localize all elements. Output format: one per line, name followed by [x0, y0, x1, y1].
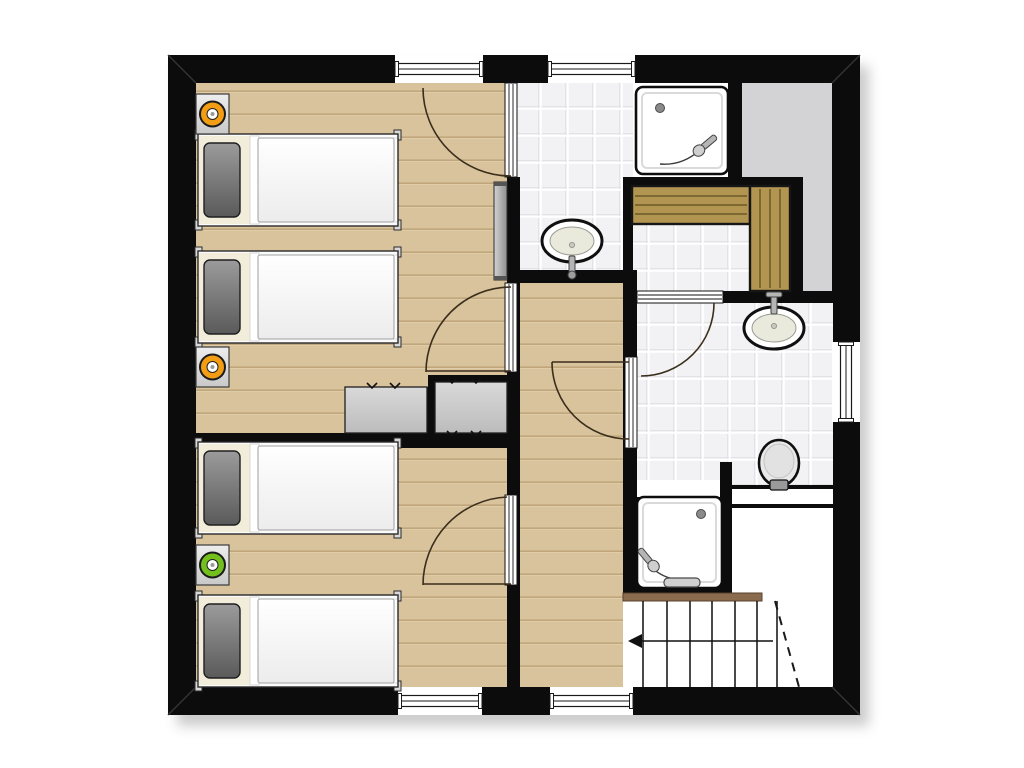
wall-bed1-bath1: [507, 177, 520, 285]
toilet-foot: [770, 480, 788, 490]
door-frame: [505, 495, 517, 585]
door-frame: [505, 83, 517, 177]
window-south-2: [550, 687, 633, 715]
faucet-hole: [569, 242, 574, 247]
shower-tray-1: [636, 87, 728, 174]
toilet-seat: [764, 444, 794, 478]
pillow: [204, 451, 240, 525]
wall-wardrobe-mid: [427, 387, 435, 433]
wall-shower1-east: [728, 55, 742, 177]
wall-sauna-south-w: [623, 291, 637, 303]
bed-3: [195, 438, 401, 538]
lamp-dot: [211, 563, 215, 567]
wardrobe-2: [435, 378, 507, 436]
duvet: [258, 255, 394, 339]
nightstand-3: [196, 545, 229, 585]
door-bed2-corridor: [505, 495, 517, 585]
window-jamb-bottom: [839, 419, 854, 423]
shower-drain: [656, 104, 665, 113]
shower-drain: [697, 510, 706, 519]
nightstand-1: [196, 94, 229, 134]
pillow: [204, 260, 240, 334]
wall-sauna-east: [790, 188, 803, 303]
tap-handle: [766, 292, 782, 297]
window-south-1: [398, 687, 482, 715]
window-jamb-left: [398, 694, 402, 709]
tap-base: [568, 271, 576, 279]
bed-4: [195, 591, 401, 691]
floor-plan: [0, 0, 1024, 768]
window-jamb-top: [839, 342, 854, 346]
lamp-dot: [211, 112, 215, 116]
bed-1: [195, 130, 401, 230]
tap-stem: [771, 295, 777, 314]
wardrobe-1: [345, 383, 427, 433]
shower-tray: [637, 497, 722, 588]
window-jamb-left: [550, 694, 554, 709]
panel-cap-bottom: [494, 276, 507, 280]
panel-body: [494, 182, 507, 280]
panel-cap-top: [494, 182, 507, 186]
duvet: [258, 599, 394, 683]
door-frame: [625, 357, 637, 448]
faucet-hole: [771, 323, 776, 328]
wall-corridor-bath2-s: [623, 448, 637, 593]
duvet: [258, 446, 394, 530]
sauna-bench-right: [750, 186, 790, 291]
door-bed1-bath1: [505, 83, 517, 177]
door-frame: [505, 283, 517, 372]
stair-void: [732, 508, 833, 593]
sliding-door-panel: [494, 182, 507, 280]
shower-tray-2: [635, 497, 722, 588]
wardrobe-body: [345, 387, 427, 433]
wall-bed2-corridor: [507, 585, 520, 687]
stair-handrail-edge: [623, 593, 762, 601]
window-jamb-left: [395, 62, 399, 77]
storage-void-side: [803, 177, 832, 293]
window-north-1: [395, 55, 483, 83]
corridor-floor: [520, 283, 623, 687]
ledge-edge-bottom: [732, 504, 833, 508]
pillow: [204, 143, 240, 217]
window-east-1: [832, 342, 860, 422]
door-frame: [637, 291, 723, 303]
shower-rail: [664, 578, 700, 587]
pillow: [204, 604, 240, 678]
floor-plan-page: [0, 0, 1024, 768]
nightstand-2: [196, 347, 229, 387]
door-bath2-sauna: [637, 291, 723, 303]
duvet: [258, 138, 394, 222]
bed-2: [195, 247, 401, 347]
window-jamb-right: [479, 694, 483, 709]
wardrobe-body: [435, 382, 507, 433]
shower-2-niche: [637, 480, 722, 497]
lamp-dot: [211, 365, 215, 369]
window-jamb-right: [630, 694, 634, 709]
window-north-2: [548, 55, 635, 83]
wall-bed1-corridor: [507, 372, 520, 495]
storage-void-top: [742, 83, 832, 177]
door-corridor-bath2: [625, 357, 637, 448]
window-jamb-right: [480, 62, 484, 77]
window-jamb-left: [548, 62, 552, 77]
sauna-bench-top: [632, 186, 750, 224]
stair-area: [623, 593, 833, 687]
door-bed1-corridor: [505, 283, 517, 372]
basin-bowl: [550, 227, 594, 255]
window-jamb-right: [632, 62, 636, 77]
